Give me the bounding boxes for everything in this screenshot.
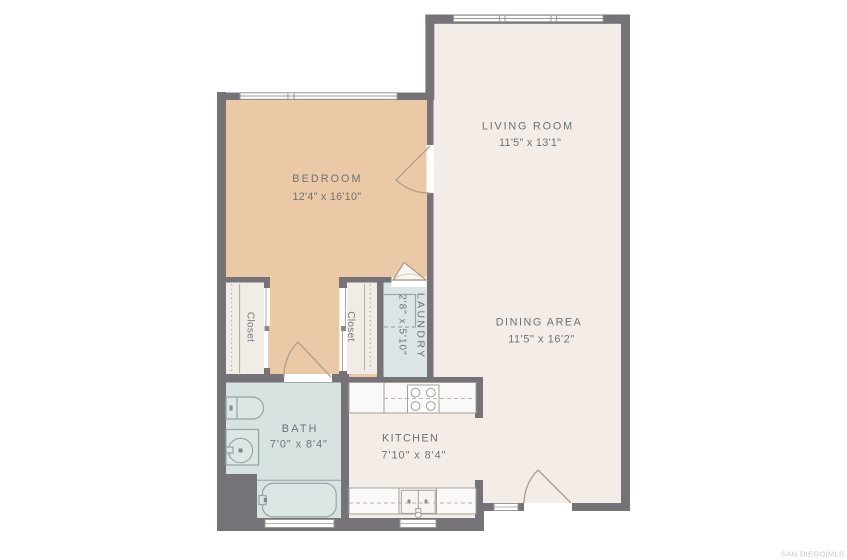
svg-text:KITCHEN: KITCHEN	[382, 433, 439, 445]
svg-text:LAUNDRY: LAUNDRY	[415, 293, 427, 357]
svg-text:7'10" x 8'4": 7'10" x 8'4"	[382, 450, 446, 462]
svg-text:12'4" x 16'10": 12'4" x 16'10"	[293, 191, 362, 203]
svg-text:7'0" x 8'4": 7'0" x 8'4"	[270, 439, 327, 451]
svg-text:11'5" x 13'1": 11'5" x 13'1"	[499, 137, 561, 149]
svg-text:BATH: BATH	[282, 423, 318, 435]
svg-text:DINING AREA: DINING AREA	[496, 317, 582, 329]
svg-text:Closet: Closet	[244, 312, 255, 342]
svg-text:LIVING ROOM: LIVING ROOM	[482, 121, 573, 133]
svg-text:11'5" x 16'2": 11'5" x 16'2"	[508, 334, 574, 346]
svg-text:Closet: Closet	[345, 311, 356, 341]
svg-text:SAN DIEGO|MLS: SAN DIEGO|MLS	[781, 550, 844, 559]
svg-text:2'8" x 5'10": 2'8" x 5'10"	[396, 294, 407, 355]
svg-text:BEDROOM: BEDROOM	[292, 173, 361, 185]
